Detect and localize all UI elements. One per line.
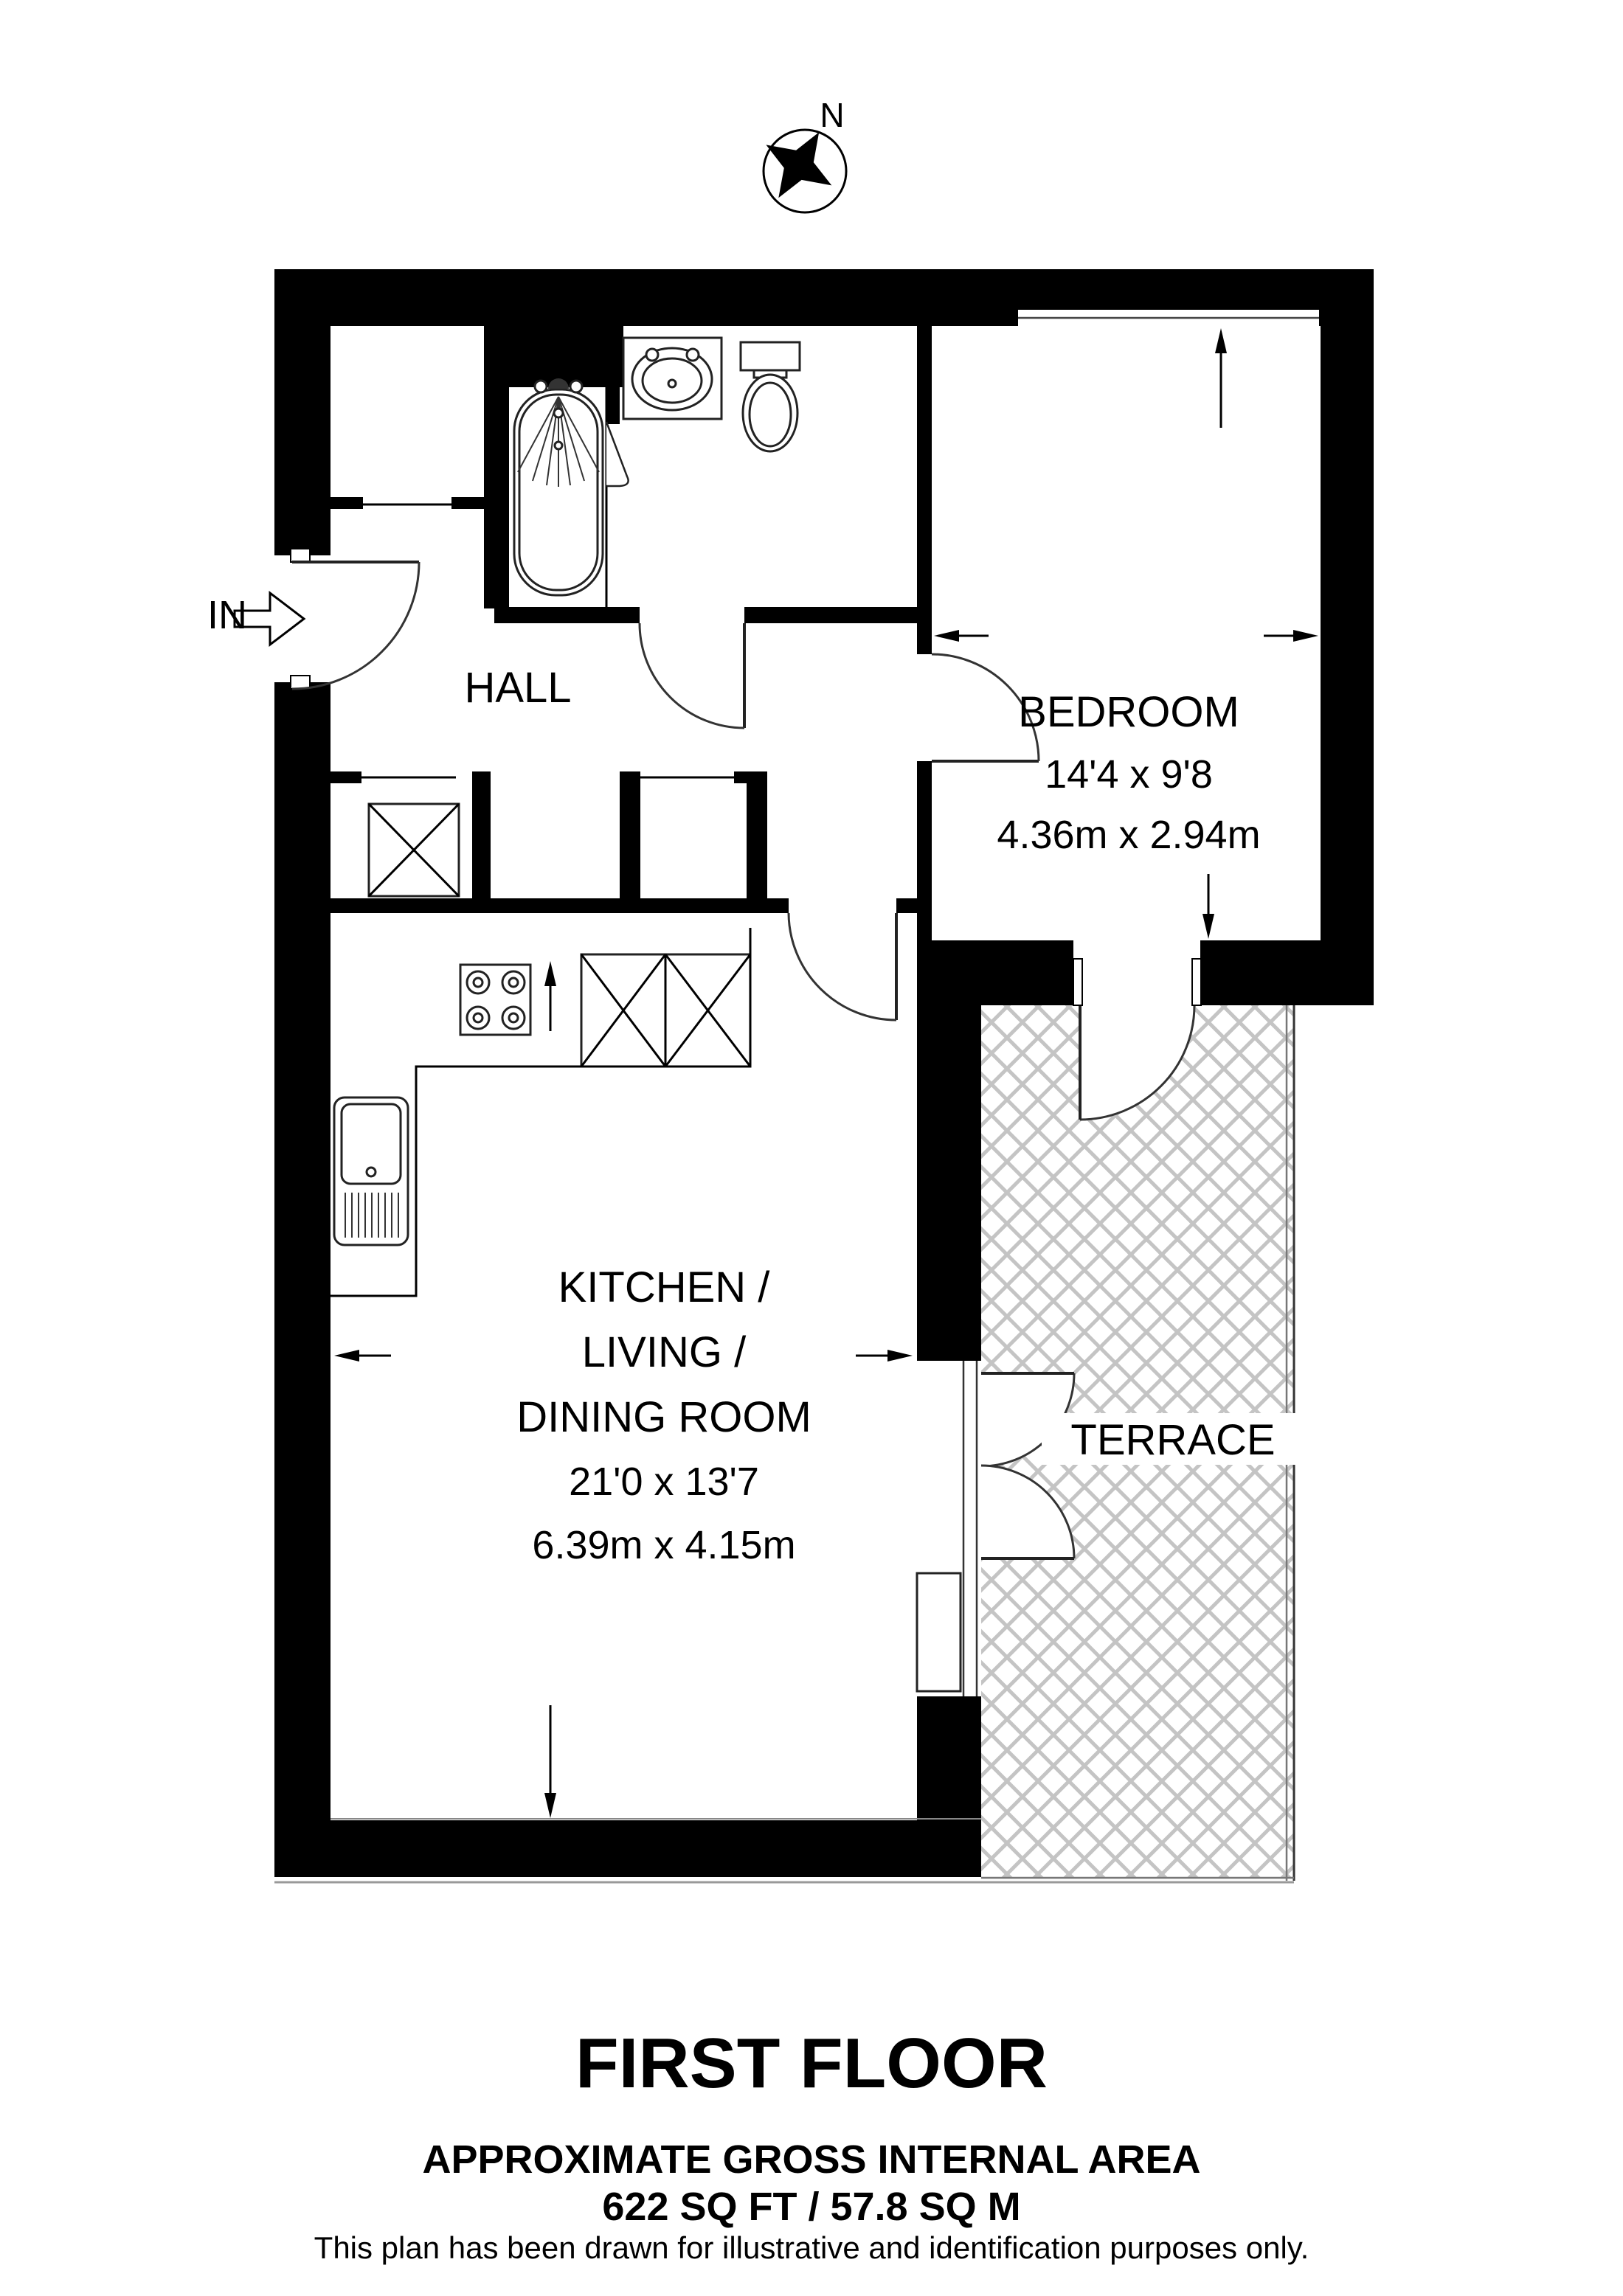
kitchen-dims-m: 6.39m x 4.15m xyxy=(532,1523,795,1567)
hall-label: HALL xyxy=(464,664,571,712)
bedroom-window xyxy=(1018,310,1319,326)
bathroom-sink-icon xyxy=(623,338,721,419)
disclaimer-text: This plan has been drawn for illustrativ… xyxy=(314,2230,1309,2265)
area-heading: APPROXIMATE GROSS INTERNAL AREA xyxy=(422,2137,1200,2182)
shower-screen-icon xyxy=(606,422,629,486)
kitchen-label-line2: LIVING / xyxy=(582,1328,747,1376)
floorplan-page: N xyxy=(0,0,1623,2296)
entrance-label: IN xyxy=(207,593,247,637)
compass-north-label: N xyxy=(820,96,844,134)
kitchen-cabinet-icon xyxy=(581,954,750,1067)
kitchen-sink-icon xyxy=(334,1097,408,1245)
terrace-label: TERRACE xyxy=(1070,1416,1275,1464)
bedroom-dims-m: 4.36m x 2.94m xyxy=(997,813,1260,857)
kitchen-dim-arrows xyxy=(334,961,913,1818)
bedroom-dims-ft: 14'4 x 9'8 xyxy=(1045,752,1213,797)
bedroom-label: BEDROOM xyxy=(1018,688,1239,736)
terrace-side-window xyxy=(917,1573,961,1691)
kitchen-door xyxy=(789,913,896,1020)
entrance-door xyxy=(291,549,419,689)
floor-title: FIRST FLOOR xyxy=(575,2024,1048,2103)
toilet-icon xyxy=(741,342,800,451)
kitchen-label-line1: KITCHEN / xyxy=(558,1263,771,1311)
area-value: 622 SQ FT / 57.8 SQ M xyxy=(602,2185,1020,2229)
storage-closet-icon xyxy=(369,804,459,896)
hob-icon xyxy=(460,965,530,1035)
kitchen-dims-ft: 21'0 x 13'7 xyxy=(569,1460,759,1504)
bathroom-door xyxy=(640,623,744,728)
north-compass-icon xyxy=(764,130,846,212)
kitchen-label-line3: DINING ROOM xyxy=(516,1393,811,1441)
